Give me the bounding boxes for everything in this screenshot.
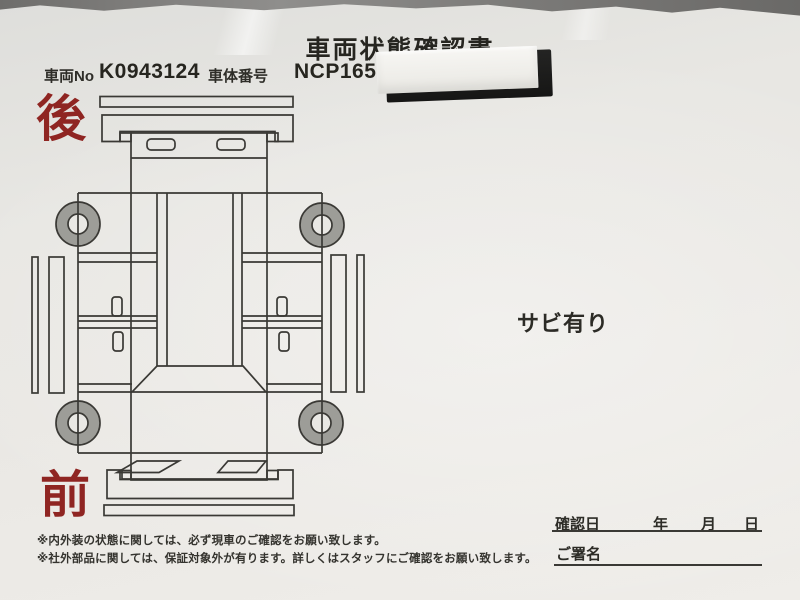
masking-sticker <box>376 45 558 110</box>
door-handle-left-rear <box>112 297 122 316</box>
side-trim-bars <box>32 255 364 393</box>
rust-note: サビ有り <box>517 306 609 338</box>
door-handle-right-rear <box>277 297 287 316</box>
photo-background: 車両状態確認書 車両No K0943124 車体番号 NCP165- 後 前 <box>0 0 800 600</box>
wheel-front-right <box>299 401 343 445</box>
body-no-label: 車体番号 <box>208 65 268 86</box>
cabin-lines <box>78 193 322 453</box>
door-handle-left-front <box>113 332 123 351</box>
vehicle-no-value: K0943124 <box>99 60 200 84</box>
car-body-outline <box>131 133 267 480</box>
tail-light-right <box>217 139 245 150</box>
signature-line <box>554 564 762 566</box>
masking-white-label <box>376 46 538 94</box>
windshield <box>132 366 266 392</box>
tail-light-left <box>147 139 175 150</box>
confirm-date-line <box>552 530 762 532</box>
footnote-aftermarket-parts: ※社外部品に関しては、保証対象外が有ります。詳しくはスタッフにご確認をお願い致し… <box>37 550 537 566</box>
rear-bumper <box>100 97 293 142</box>
car-top-view-diagram <box>20 88 380 524</box>
vehicle-no-label: 車両No <box>44 65 94 86</box>
body-no-value: NCP165- <box>294 60 384 84</box>
front-bumper <box>107 470 293 499</box>
front-end <box>104 461 294 516</box>
paper-sheet: 車両状態確認書 車両No K0943124 車体番号 NCP165- 後 前 <box>0 0 800 600</box>
headlight-right <box>218 461 266 473</box>
footnote-interior-exterior: ※内外装の状態に関しては、必ず現車のご確認をお願い致します。 <box>37 532 386 548</box>
door-handle-right-front <box>279 332 289 351</box>
signature-label: ご署名 <box>556 543 601 564</box>
